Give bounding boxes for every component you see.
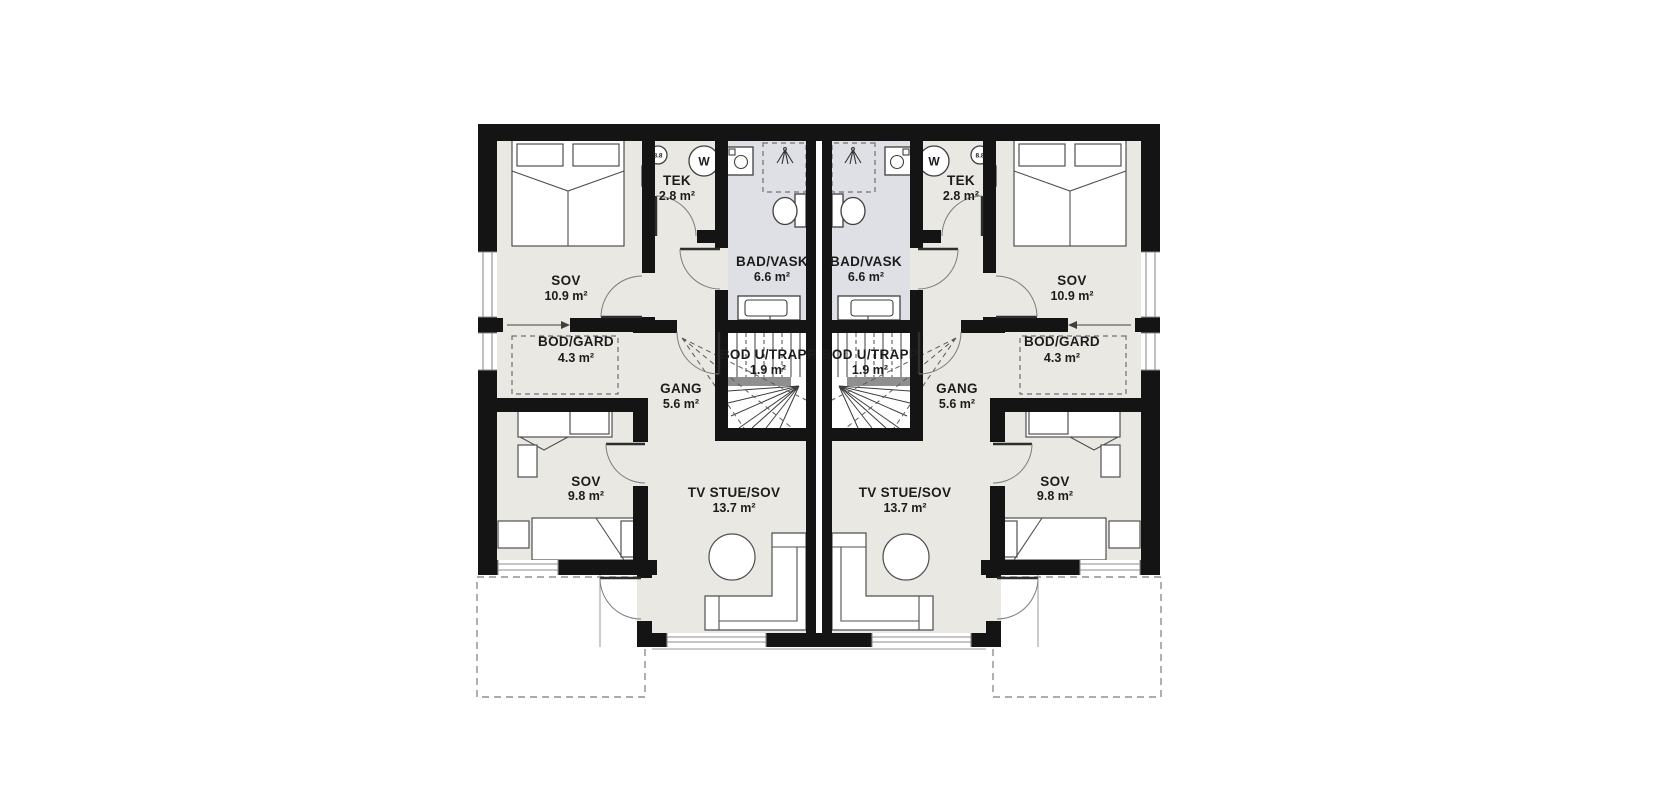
sink-vanity-icon <box>838 296 900 320</box>
round-table-icon <box>883 534 929 580</box>
water-heater-label-right: W <box>928 155 940 169</box>
room-label-gang-right: GANG <box>936 381 978 396</box>
vent-label-left: 8.8 <box>653 153 662 160</box>
shelf-icon <box>1101 445 1120 477</box>
room-area-gang-left: 5.6 m² <box>663 397 699 411</box>
room-area-sov-main-left: 10.9 m² <box>544 289 587 303</box>
single-bed-bottom-icon <box>994 518 1106 560</box>
window <box>872 633 971 647</box>
room-area-bodtrapp-left: 1.9 m² <box>750 363 786 377</box>
room-area-tek-right: 2.8 m² <box>943 189 979 203</box>
terrace-outline <box>477 577 645 697</box>
party-wall-seam <box>819 141 822 633</box>
room-area-sov-small-right: 9.8 m² <box>1037 489 1073 503</box>
door-entry <box>600 578 641 619</box>
room-label-sov-main-left: SOV <box>551 273 580 288</box>
room-label-gang-left: GANG <box>660 381 702 396</box>
nightstand-icon <box>1109 521 1140 548</box>
window <box>498 560 558 575</box>
room-label-tv-right: TV STUE/SOV <box>859 485 952 500</box>
window <box>1141 252 1160 317</box>
room-label-bodgard-right: BOD/GARD <box>1024 334 1100 349</box>
room-label-sov-main-right: SOV <box>1057 273 1086 288</box>
room-area-tv-right: 13.7 m² <box>883 501 926 515</box>
floor-plan-page: SOV 10.9 m² TEK 2.8 m² BAD/VASK 6.6 m² B… <box>0 0 1670 800</box>
window <box>1080 560 1140 575</box>
stair-landing <box>727 377 791 386</box>
room-area-sov-main-right: 10.9 m² <box>1050 289 1093 303</box>
shelf-icon <box>518 445 537 477</box>
washing-machine-icon <box>885 147 911 175</box>
entry-landing-line <box>1001 572 1038 647</box>
room-label-bad-right: BAD/VASK <box>830 254 902 269</box>
room-area-bad-left: 6.6 m² <box>754 270 790 284</box>
window <box>478 252 497 317</box>
window <box>667 633 766 647</box>
room-label-bad-left: BAD/VASK <box>736 254 808 269</box>
sink-vanity-icon <box>738 296 800 320</box>
room-area-tv-left: 13.7 m² <box>712 501 755 515</box>
room-area-sov-small-left: 9.8 m² <box>568 489 604 503</box>
window <box>1141 333 1160 370</box>
room-area-bad-right: 6.6 m² <box>848 270 884 284</box>
room-label-sov-small-right: SOV <box>1040 474 1069 489</box>
party-wall-seam <box>816 141 819 633</box>
nightstand-icon <box>498 521 529 548</box>
double-bed-icon <box>1014 140 1126 246</box>
room-area-gang-right: 5.6 m² <box>939 397 975 411</box>
room-area-bodgard-right: 4.3 m² <box>1044 351 1080 365</box>
unit-right <box>819 124 1161 697</box>
room-label-bodtrapp-left: BOD U/TRAPP <box>720 347 816 362</box>
room-label-tek-left: TEK <box>663 173 691 188</box>
washing-machine-icon <box>727 147 753 175</box>
room-area-bodgard-left: 4.3 m² <box>558 351 594 365</box>
room-area-bodtrapp-right: 1.9 m² <box>852 363 888 377</box>
stair-landing <box>847 377 911 386</box>
room-label-tv-left: TV STUE/SOV <box>688 485 781 500</box>
unit-left <box>477 124 819 697</box>
water-heater-label-left: W <box>698 155 710 169</box>
entry-landing-line <box>600 572 637 647</box>
room-label-bodtrapp-right: BOD U/TRAPP <box>822 347 918 362</box>
room-area-tek-left: 2.8 m² <box>659 189 695 203</box>
double-bed-icon <box>512 140 624 246</box>
room-label-bodgard-left: BOD/GARD <box>538 334 614 349</box>
floor-plan: SOV 10.9 m² TEK 2.8 m² BAD/VASK 6.6 m² B… <box>0 0 1670 800</box>
room-label-tek-right: TEK <box>947 173 975 188</box>
single-bed-bottom-icon <box>532 518 644 560</box>
vent-label-right: 8.8 <box>975 153 984 160</box>
terrace-outline <box>993 577 1161 697</box>
room-label-sov-small-left: SOV <box>571 474 600 489</box>
round-table-icon <box>709 534 755 580</box>
window <box>478 333 497 370</box>
door-entry <box>997 578 1038 619</box>
